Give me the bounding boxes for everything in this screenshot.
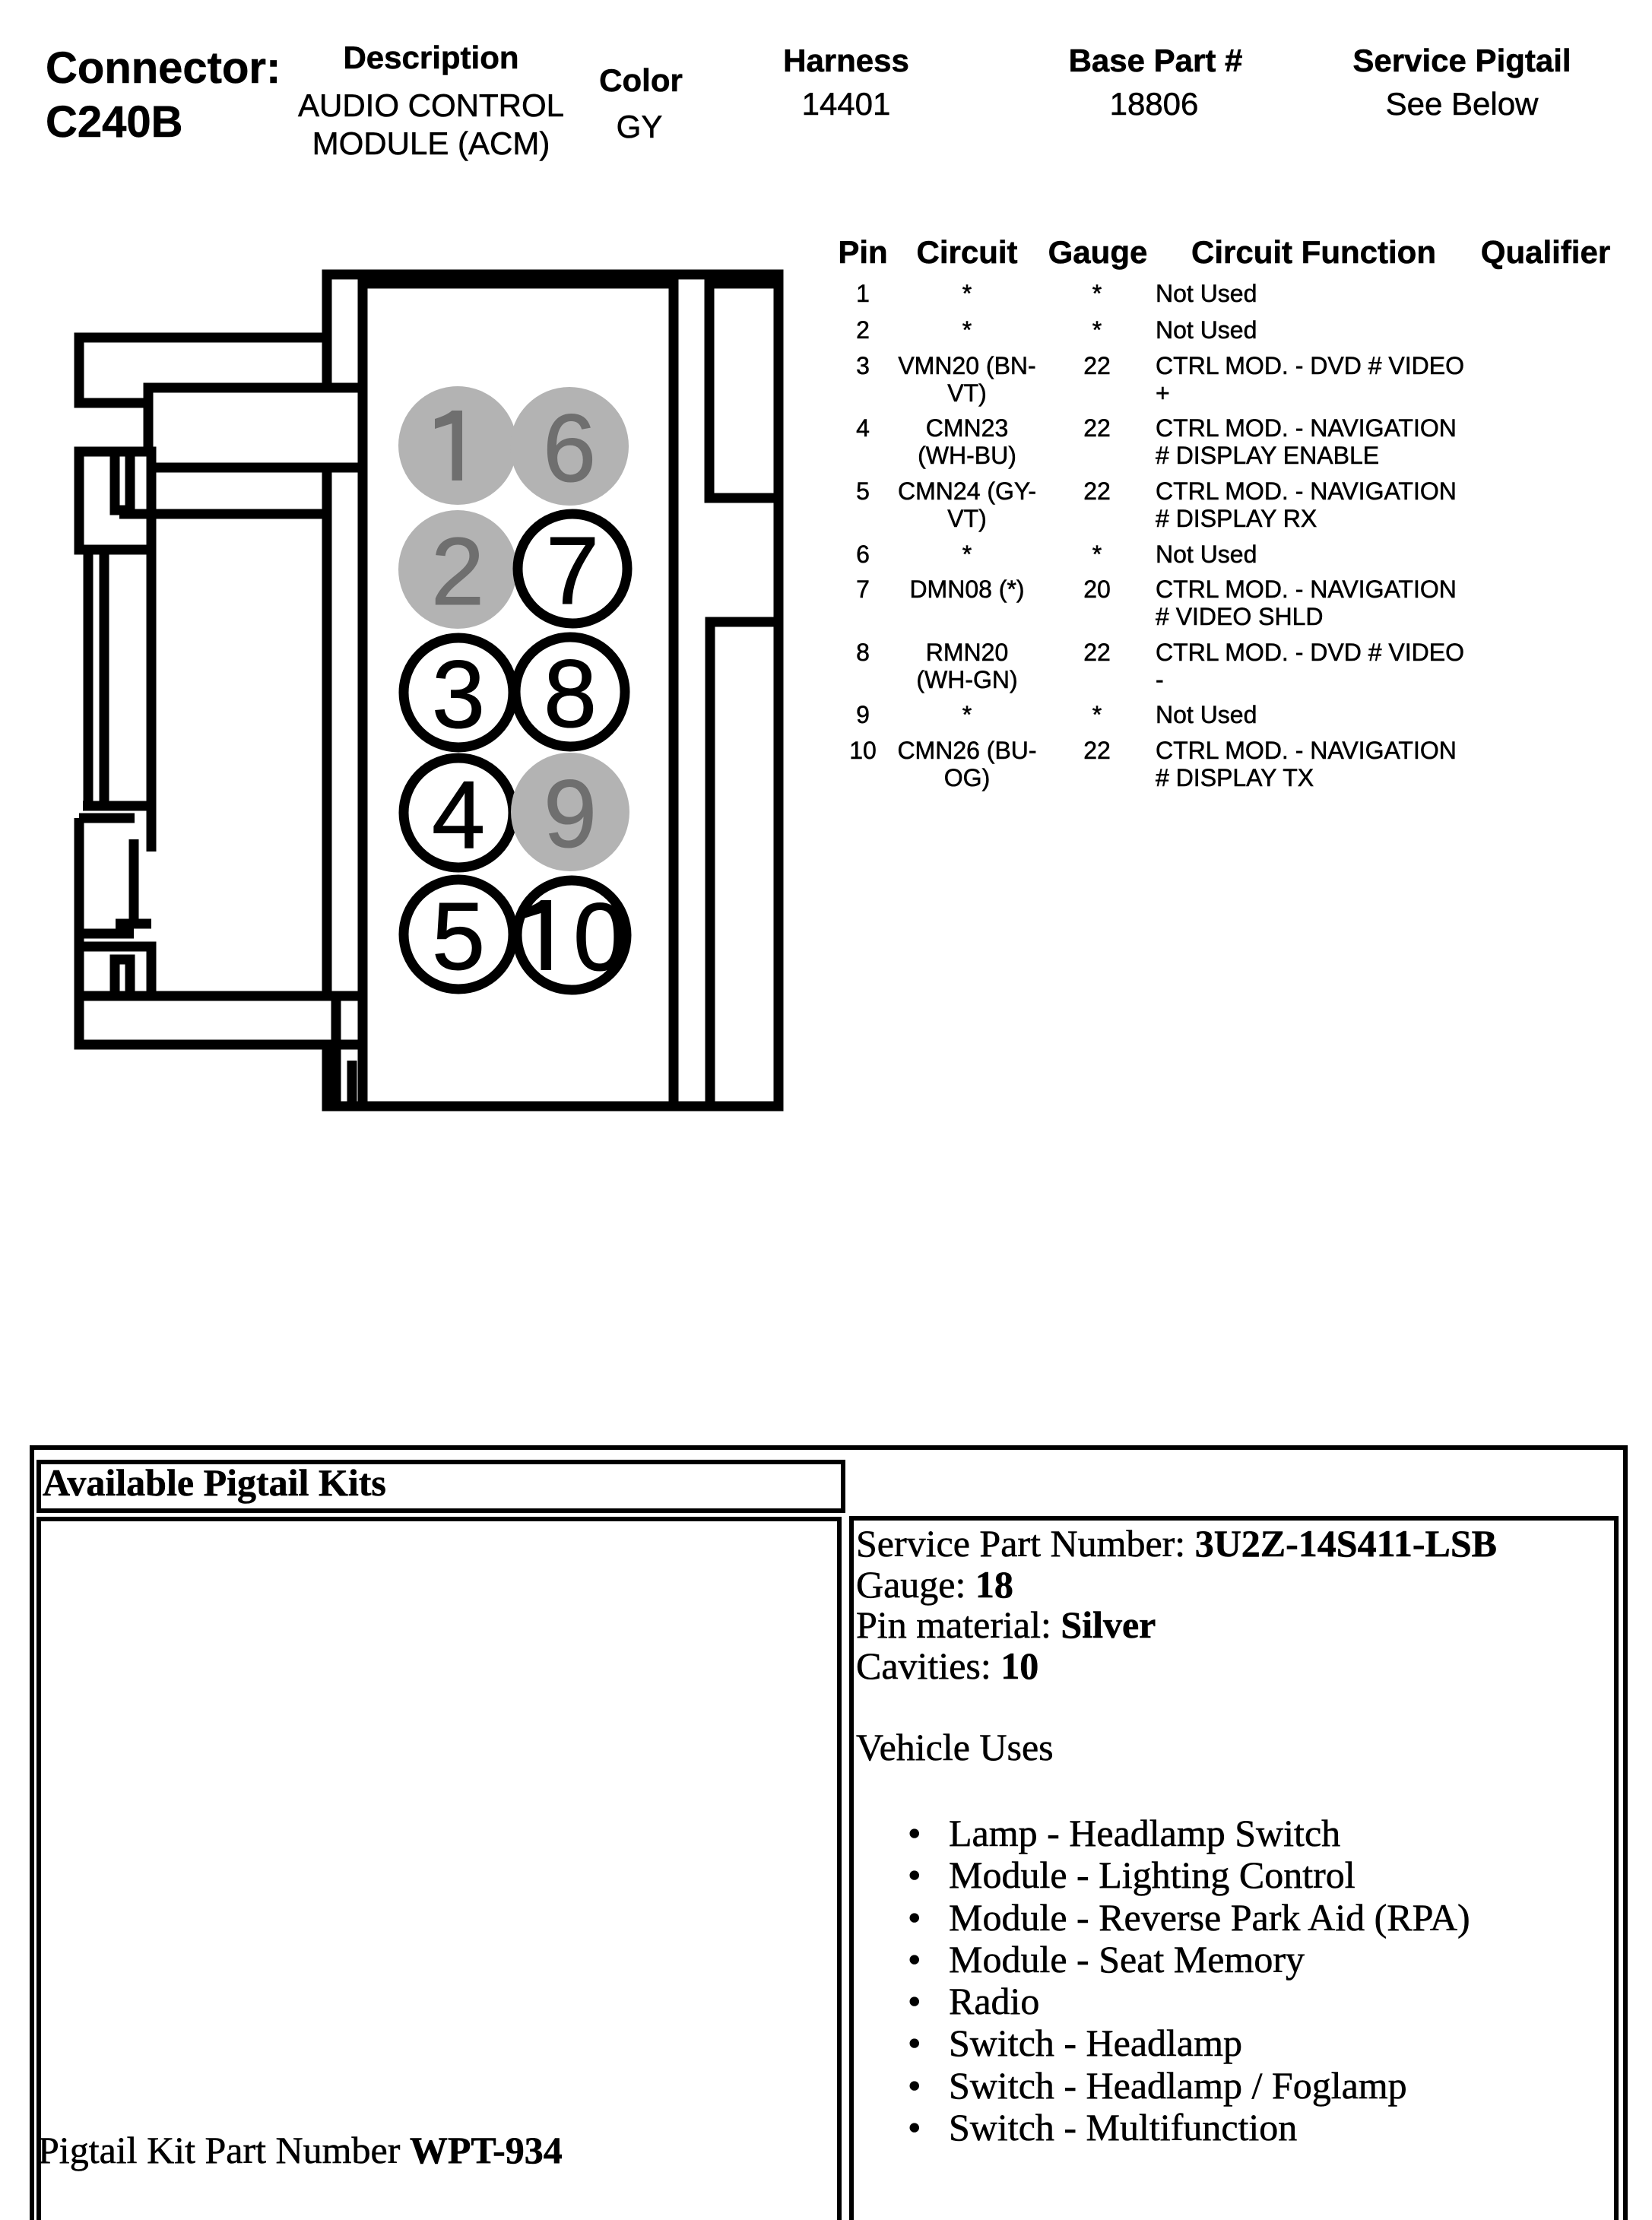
svg-text:0: 0 <box>573 883 626 991</box>
svg-text:7: 7 <box>546 517 599 624</box>
svg-text:6: 6 <box>543 395 596 502</box>
svg-text:9: 9 <box>544 760 597 867</box>
svg-text:5: 5 <box>432 883 485 990</box>
svg-text:8: 8 <box>544 640 597 747</box>
svg-text:4: 4 <box>432 761 485 868</box>
svg-text:3: 3 <box>432 641 485 748</box>
svg-text:2: 2 <box>431 518 484 625</box>
